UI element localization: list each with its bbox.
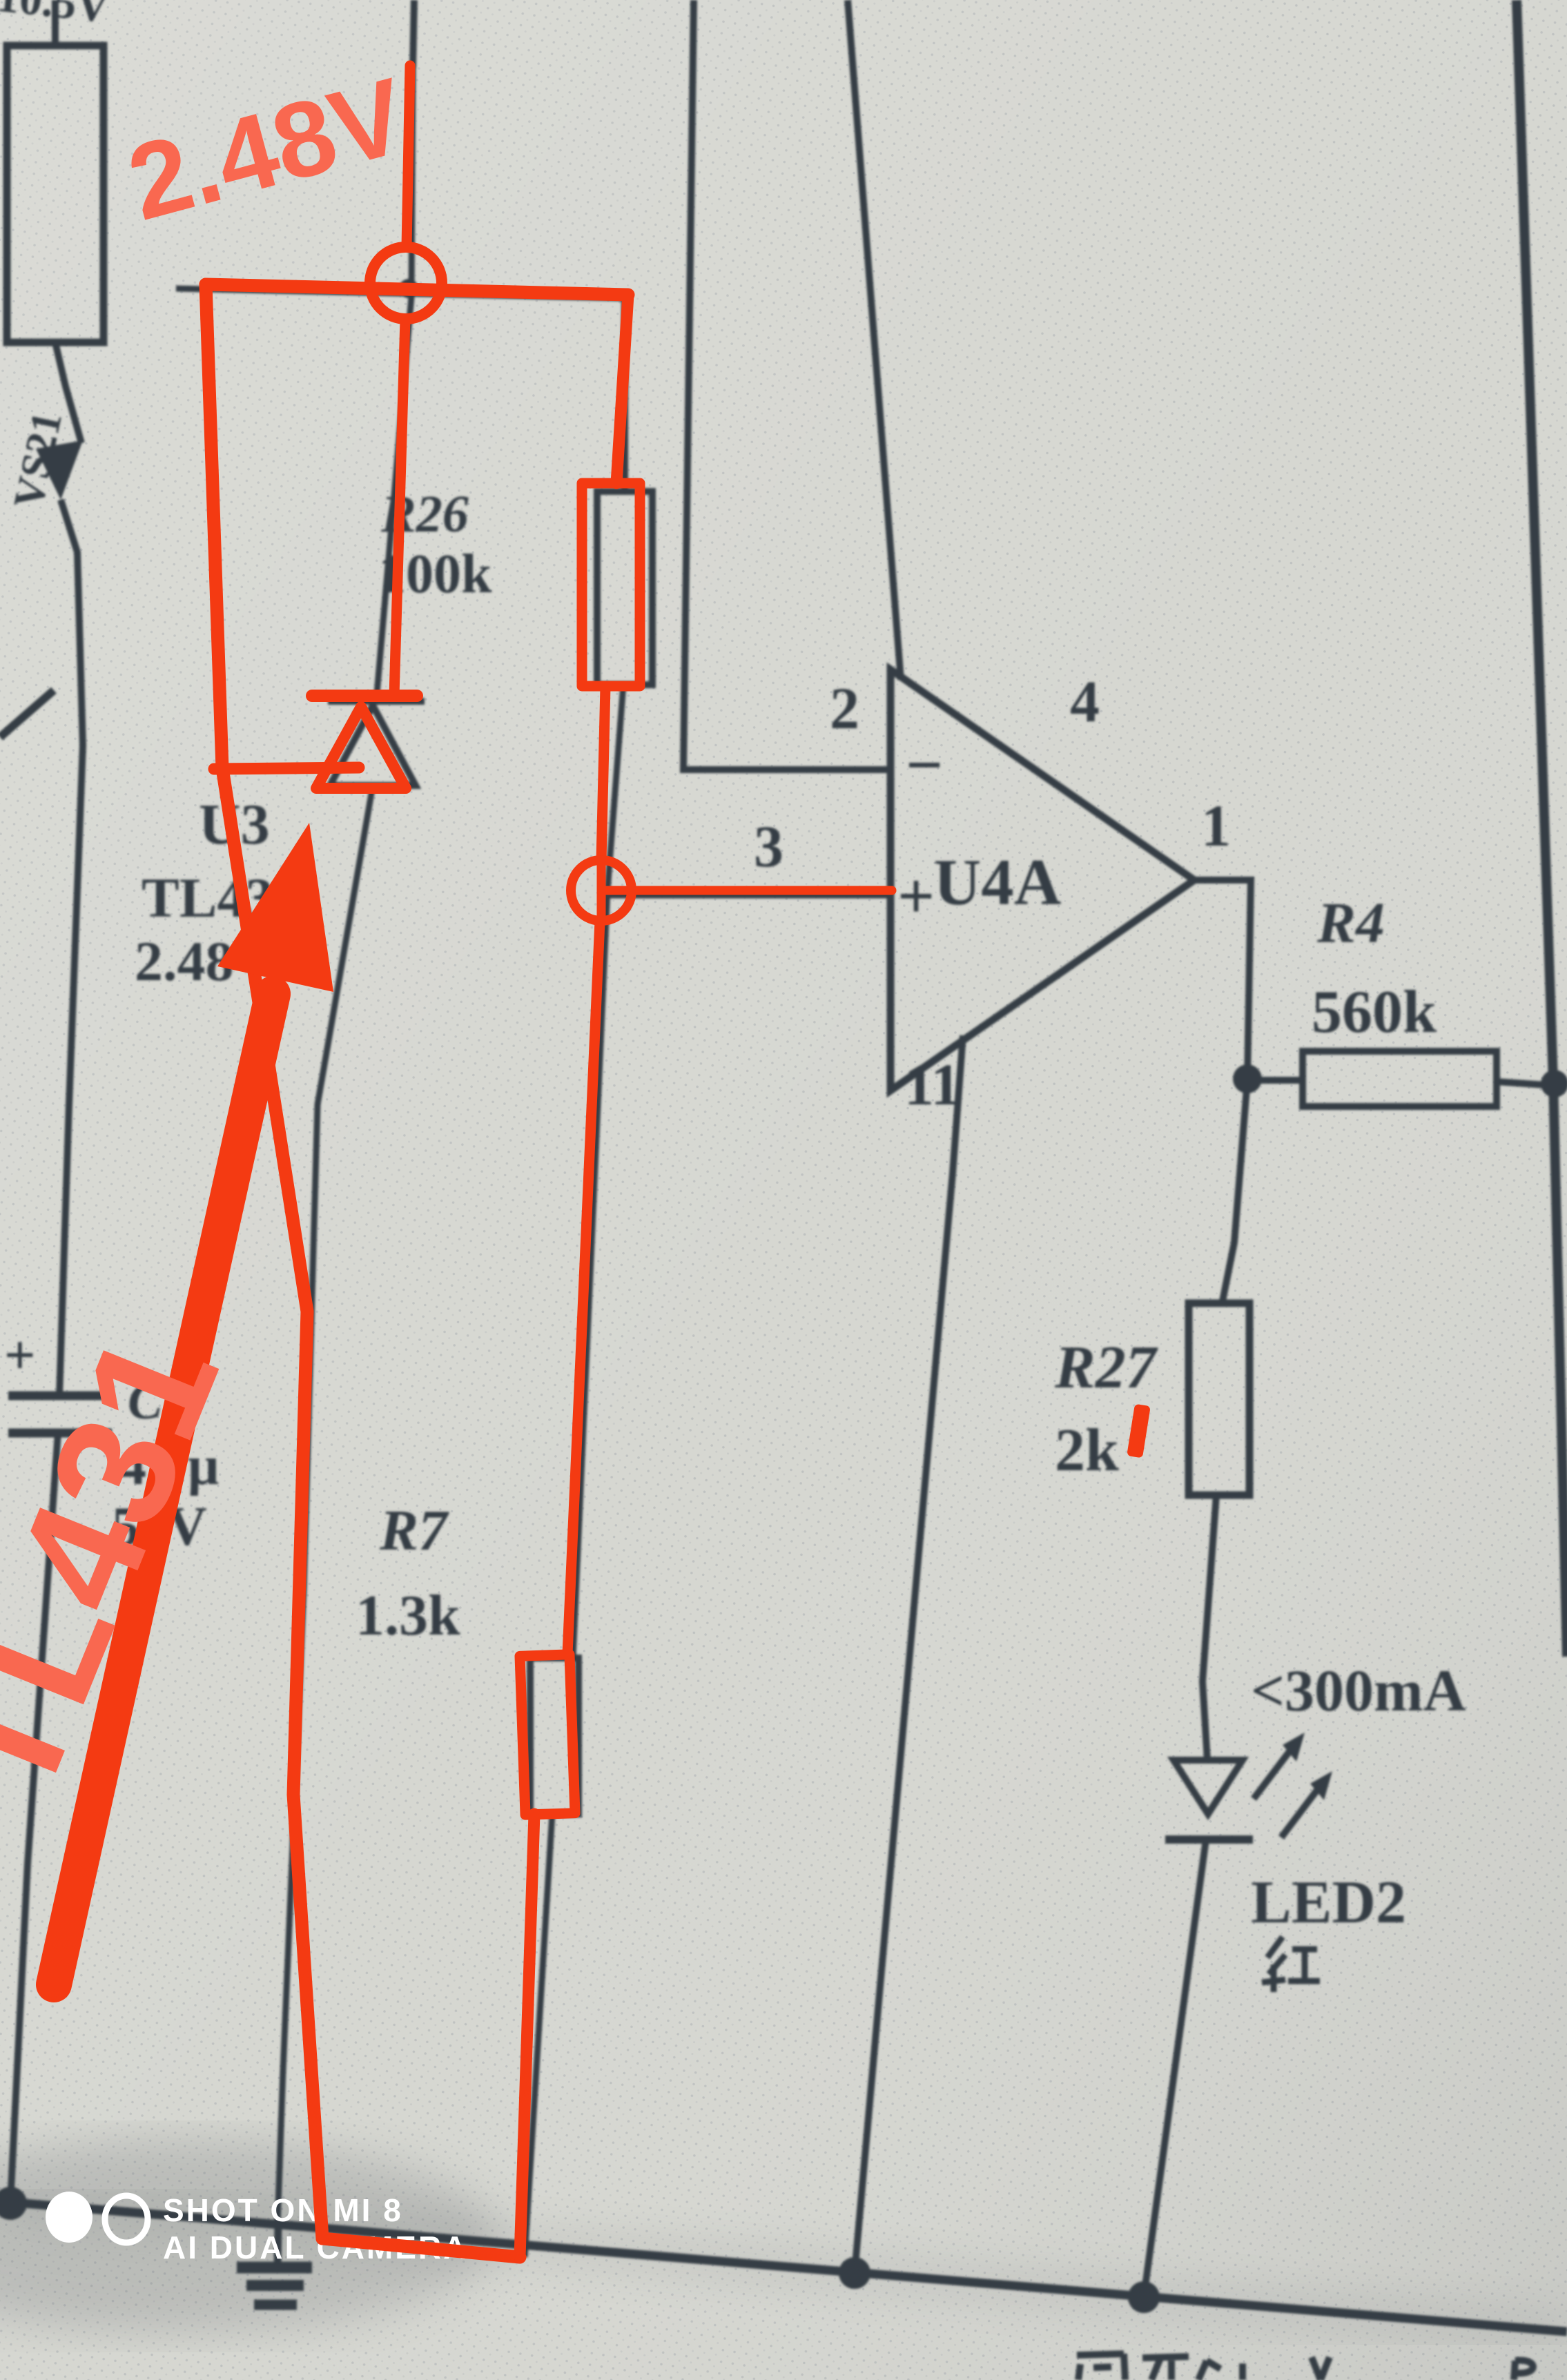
r7-label: R7: [379, 1499, 449, 1563]
watermark-dot-filled: [46, 2192, 93, 2243]
opamp-minus-sign: −: [906, 728, 943, 801]
r4-value: 560k: [1312, 979, 1437, 1046]
bus-junction-led: [1128, 2281, 1160, 2313]
bottom-caption-right: R: [1553, 2346, 1567, 2380]
opamp-plus-sign: +: [897, 859, 935, 933]
c9-polarity-sign: +: [4, 1325, 36, 1386]
bus-junction-pin11: [839, 2257, 870, 2289]
r27-label: R27: [1054, 1334, 1158, 1401]
led2-label: LED2: [1251, 1869, 1406, 1936]
r4-label: R4: [1316, 891, 1385, 955]
r26-label: R26: [380, 485, 469, 543]
red-inner-horizontal: [214, 768, 359, 769]
r27-value: 2k: [1055, 1417, 1119, 1484]
bottom-caption-text: 调在4.4V: [1074, 2346, 1414, 2380]
opamp-label: U4A: [934, 846, 1062, 919]
pin4-number: 4: [1070, 668, 1100, 734]
node-feed-wire-top: [413, 0, 414, 68]
led2-color-note: 红: [1259, 1933, 1321, 2006]
pin2-number: 2: [830, 675, 859, 741]
pin1-number: 1: [1201, 792, 1231, 859]
photo-of-schematic: 10.5V VS21 + C9 4.7μ 50V R26 100k U3 TL4…: [0, 0, 1567, 2380]
watermark-line1: SHOT ON MI 8: [163, 2192, 403, 2228]
pin3-number: 3: [754, 813, 783, 879]
pin11-number: 11: [904, 1051, 960, 1118]
led2-current-note: <300mA: [1251, 1657, 1466, 1724]
red-divider-trace-upper: [601, 686, 605, 860]
r7-value: 1.3k: [356, 1583, 460, 1648]
